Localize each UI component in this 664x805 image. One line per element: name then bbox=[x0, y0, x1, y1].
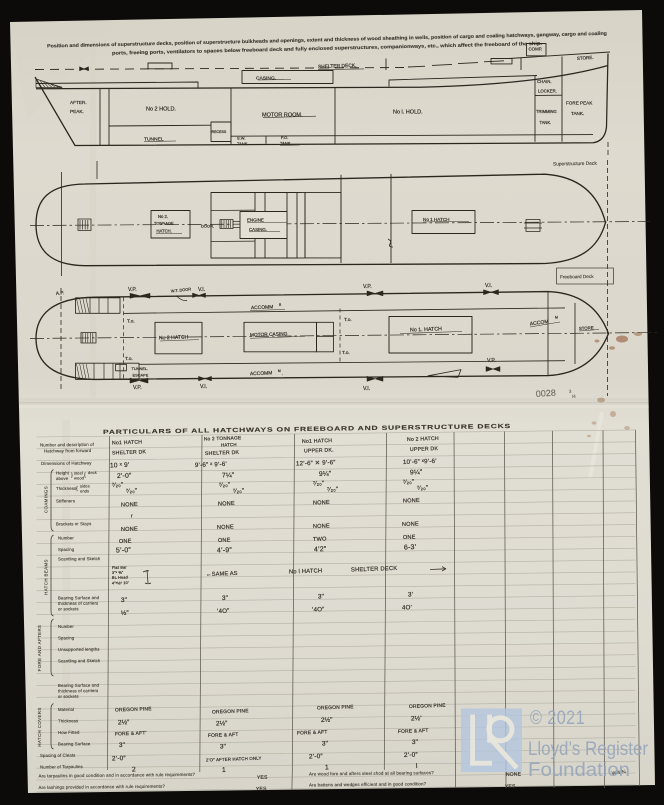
svg-text:NONE: NONE bbox=[121, 502, 138, 509]
svg-text:SHELTER DK: SHELTER DK bbox=[112, 449, 147, 456]
svg-text:TANK.: TANK. bbox=[571, 111, 584, 116]
svg-text:thickness of carriers: thickness of carriers bbox=[58, 688, 98, 693]
svg-text:Thickness: Thickness bbox=[56, 486, 76, 491]
svg-text:TWO: TWO bbox=[313, 537, 327, 543]
svg-text:FORE & AFT: FORE & AFT bbox=[398, 728, 429, 735]
svg-text:⁷⁄₂₀”: ⁷⁄₂₀” bbox=[233, 487, 245, 495]
svg-text:No l HATCH: No l HATCH bbox=[289, 568, 323, 575]
svg-text:NONE: NONE bbox=[403, 498, 420, 505]
svg-text:Hatchway from forward: Hatchway from forward bbox=[44, 448, 92, 453]
svg-text:or sockets: or sockets bbox=[58, 694, 79, 699]
svg-text:© 2021: © 2021 bbox=[530, 708, 585, 729]
svg-text:⁷⁄₂₀”: ⁷⁄₂₀” bbox=[403, 478, 415, 486]
svg-text:Scantling and Sketch: Scantling and Sketch bbox=[58, 556, 101, 561]
svg-text:V.P.: V.P. bbox=[133, 385, 142, 391]
svg-text:⁷⁄₂₀”: ⁷⁄₂₀” bbox=[313, 480, 325, 488]
svg-text:T.o.: T.o. bbox=[127, 319, 135, 325]
svg-text:’4O”: ’4O” bbox=[217, 608, 230, 615]
svg-text:Unsupported lengths: Unsupported lengths bbox=[58, 647, 100, 652]
svg-text:T.o.: T.o. bbox=[342, 350, 350, 356]
svg-text:T.o.: T.o. bbox=[344, 317, 352, 323]
svg-text:M: M bbox=[278, 369, 281, 373]
svg-text:COMP.: COMP. bbox=[529, 47, 543, 52]
svg-text:or sockets: or sockets bbox=[58, 606, 79, 611]
svg-text:Number of Tarpaulins: Number of Tarpaulins bbox=[40, 764, 83, 769]
svg-text:BL Head: BL Head bbox=[112, 575, 128, 580]
svg-text:CASING.: CASING. bbox=[249, 227, 267, 232]
svg-text:2½’: 2½’ bbox=[411, 714, 423, 722]
svg-text:Brackets or Stays: Brackets or Stays bbox=[56, 521, 91, 526]
svg-text:No 1 HATCH: No 1 HATCH bbox=[423, 217, 449, 222]
svg-text:NONE: NONE bbox=[217, 524, 234, 531]
svg-text:deck: deck bbox=[88, 470, 97, 475]
svg-text:UPPER DK: UPPER DK bbox=[410, 446, 439, 453]
svg-text:wood: wood bbox=[74, 475, 84, 480]
svg-text:4’2”: 4’2” bbox=[314, 546, 327, 553]
svg-text:SHELTER DK: SHELTER DK bbox=[205, 450, 240, 457]
svg-text:⁷⁄₂₀”: ⁷⁄₂₀” bbox=[112, 481, 124, 489]
svg-text:Stiffeners: Stiffeners bbox=[56, 498, 75, 503]
svg-text:FORE & AFT: FORE & AFT bbox=[297, 729, 328, 736]
svg-text:0028: 0028 bbox=[535, 388, 556, 399]
svg-text:TONNAGE: TONNAGE bbox=[154, 221, 174, 226]
svg-text:ONE: ONE bbox=[218, 538, 231, 544]
svg-text:NONE: NONE bbox=[402, 521, 419, 528]
svg-text:AFTER.: AFTER. bbox=[70, 100, 87, 105]
svg-text:YES: YES bbox=[256, 786, 267, 792]
svg-text:}: } bbox=[71, 472, 73, 478]
svg-text:above: above bbox=[56, 476, 69, 481]
svg-text:ENGINE: ENGINE bbox=[247, 218, 264, 223]
svg-text:10’-6” ˣ9’-6’: 10’-6” ˣ9’-6’ bbox=[403, 458, 437, 466]
svg-text:2’-0”: 2’-0” bbox=[309, 753, 323, 760]
svg-text:½": ½" bbox=[121, 609, 129, 617]
svg-text:V.l.: V.l. bbox=[198, 287, 205, 293]
svg-text:⁷⁄₂₀”: ⁷⁄₂₀” bbox=[417, 484, 429, 492]
svg-text:Flat Bar: Flat Bar bbox=[112, 565, 128, 570]
svg-text:3": 3" bbox=[220, 743, 226, 750]
svg-text:TANK.: TANK. bbox=[540, 120, 552, 125]
svg-text:NONE: NONE bbox=[313, 523, 330, 530]
svg-text:Number and description of: Number and description of bbox=[40, 442, 95, 448]
svg-text:Thickness: Thickness bbox=[58, 718, 78, 723]
svg-text:No l. HOLD.: No l. HOLD. bbox=[393, 110, 423, 116]
svg-text:2’-0”: 2’-0” bbox=[117, 472, 132, 480]
svg-text:Spacing of Cleats: Spacing of Cleats bbox=[40, 753, 75, 758]
svg-text:NONE: NONE bbox=[218, 501, 235, 508]
svg-text:V.P.: V.P. bbox=[487, 358, 496, 364]
svg-text:r: r bbox=[131, 513, 133, 519]
svg-text:UPPER DK.: UPPER DK. bbox=[304, 447, 334, 454]
svg-text:Height: Height bbox=[56, 470, 70, 475]
svg-text:No1 HATCH: No1 HATCH bbox=[112, 439, 142, 446]
svg-text:⁷⁄₂₀”: ⁷⁄₂₀” bbox=[219, 481, 231, 489]
svg-text:3": 3" bbox=[222, 595, 228, 602]
svg-text:{: { bbox=[84, 472, 86, 478]
svg-text:No1 HATCH: No1 HATCH bbox=[302, 438, 332, 445]
svg-text:V.P.: V.P. bbox=[128, 287, 137, 293]
svg-text:3": 3" bbox=[318, 593, 324, 600]
svg-text:Number: Number bbox=[58, 624, 74, 629]
svg-text:FORE & AFT’: FORE & AFT’ bbox=[115, 730, 147, 737]
svg-text:COAMINGS: COAMINGS bbox=[44, 486, 49, 513]
svg-text:7¼”: 7¼” bbox=[222, 472, 235, 479]
svg-text:Scantling and Sketch: Scantling and Sketch bbox=[58, 658, 101, 663]
svg-text:Dimensions of Hatchway: Dimensions of Hatchway bbox=[41, 460, 92, 466]
svg-text:M: M bbox=[555, 316, 558, 320]
svg-text:Superstructure Deck: Superstructure Deck bbox=[553, 161, 597, 168]
svg-text:4"ˣ½ˣ 10’: 4"ˣ½ˣ 10’ bbox=[112, 581, 129, 586]
svg-text:Lloyd’s Register: Lloyd’s Register bbox=[528, 738, 648, 760]
svg-text:DOOR.: DOOR. bbox=[201, 224, 214, 229]
svg-text:CHAIN.: CHAIN. bbox=[537, 79, 552, 84]
svg-text:2½": 2½" bbox=[321, 716, 333, 724]
svg-text:HATCH: HATCH bbox=[221, 442, 237, 448]
svg-text:Material: Material bbox=[58, 707, 74, 712]
svg-text:10 ˣ 9’: 10 ˣ 9’ bbox=[110, 462, 130, 470]
svg-text:ONE: ONE bbox=[403, 535, 416, 541]
svg-text:How Fitted: How Fitted bbox=[58, 730, 80, 735]
svg-text:12’-6” ✕ 9’-6”: 12’-6” ✕ 9’-6” bbox=[296, 459, 336, 467]
svg-text:2½”: 2½” bbox=[216, 719, 228, 727]
svg-text:HATCH BEAMS: HATCH BEAMS bbox=[44, 559, 49, 595]
svg-text:3": 3" bbox=[322, 740, 328, 747]
svg-text:Bearing Surface: Bearing Surface bbox=[58, 741, 91, 746]
svg-text:2’-0”: 2’-0” bbox=[404, 752, 418, 759]
svg-text:5’-0”: 5’-0” bbox=[116, 547, 132, 555]
svg-text:S.W.: S.W. bbox=[237, 136, 245, 141]
svg-text:ESCAPE: ESCAPE bbox=[133, 373, 149, 378]
svg-text:9¼”: 9¼” bbox=[319, 471, 332, 478]
svg-text:FORE PEAK: FORE PEAK bbox=[566, 101, 593, 106]
svg-text:Freeboard Deck: Freeboard Deck bbox=[560, 274, 594, 280]
svg-text:RECESS: RECESS bbox=[212, 130, 227, 134]
svg-text:3": 3" bbox=[119, 742, 125, 749]
svg-text:V.l.: V.l. bbox=[200, 384, 207, 390]
svg-text:YES: YES bbox=[505, 784, 516, 790]
svg-text:CASING.: CASING. bbox=[256, 76, 276, 82]
svg-text:4’-9”: 4’-9” bbox=[217, 547, 233, 555]
svg-text:FORE & AFT: FORE & AFT bbox=[208, 732, 239, 739]
svg-text:9¼”: 9¼” bbox=[410, 469, 423, 476]
svg-text:.: . bbox=[282, 372, 283, 377]
svg-text:3": 3" bbox=[121, 597, 127, 604]
svg-text:1: 1 bbox=[222, 767, 226, 774]
svg-text:{: { bbox=[76, 486, 78, 492]
svg-text:No 2 HOLD.: No 2 HOLD. bbox=[146, 107, 176, 113]
svg-text:2½”: 2½” bbox=[118, 718, 130, 726]
svg-text:NONE: NONE bbox=[121, 526, 138, 533]
svg-text:No 2 HATCH: No 2 HATCH bbox=[407, 436, 439, 443]
svg-text:HATCH.: HATCH. bbox=[157, 229, 172, 234]
svg-text:2’-0”: 2’-0” bbox=[112, 755, 126, 762]
svg-text:TUNNEL.: TUNNEL. bbox=[132, 366, 149, 371]
svg-text:FORE AND AFTERS: FORE AND AFTERS bbox=[37, 625, 42, 672]
svg-text:3’: 3’ bbox=[408, 591, 414, 598]
svg-text:T.o.: T.o. bbox=[125, 356, 133, 362]
svg-text:YES: YES bbox=[257, 775, 268, 781]
svg-text:3"ˣ ⅜": 3"ˣ ⅜" bbox=[112, 571, 124, 575]
svg-text:ACCOMM: ACCOMM bbox=[250, 370, 272, 377]
svg-text:LOCKER.: LOCKER. bbox=[538, 89, 557, 94]
svg-text:V.l.: V.l. bbox=[363, 386, 370, 392]
svg-text:No 2.: No 2. bbox=[158, 214, 168, 219]
svg-text:V.l.: V.l. bbox=[485, 283, 492, 289]
svg-text:TRIMMING: TRIMMING bbox=[536, 109, 557, 114]
svg-text:Spacing: Spacing bbox=[58, 547, 75, 552]
svg-text:’4O”: ’4O” bbox=[312, 606, 325, 613]
svg-text:A.P.: A.P. bbox=[56, 290, 65, 297]
svg-text:TANK: TANK bbox=[237, 141, 248, 146]
svg-text:9’-6” ˣ 9’-6’: 9’-6” ˣ 9’-6’ bbox=[195, 461, 227, 469]
svg-text:3": 3" bbox=[412, 739, 418, 746]
svg-text:⁷⁄₂₀”: ⁷⁄₂₀” bbox=[327, 486, 339, 494]
svg-text:HATCH COVERS: HATCH COVERS bbox=[37, 707, 42, 746]
svg-text:6-3’: 6-3’ bbox=[404, 544, 417, 551]
svg-text:Spacing: Spacing bbox=[58, 635, 75, 640]
svg-text:ends: ends bbox=[80, 488, 89, 493]
svg-text:4O’: 4O’ bbox=[402, 604, 412, 611]
svg-text:thickness of carriers: thickness of carriers bbox=[58, 601, 98, 606]
svg-text:F.O.: F.O. bbox=[281, 135, 288, 140]
svg-text:ONE: ONE bbox=[119, 539, 132, 545]
svg-text:NONE: NONE bbox=[506, 771, 522, 778]
svg-text:PEAK.: PEAK. bbox=[70, 109, 84, 114]
svg-text:NONE: NONE bbox=[313, 500, 330, 507]
svg-text:←SAME AS: ←SAME AS bbox=[206, 571, 238, 578]
svg-text:V.P.: V.P. bbox=[363, 284, 372, 290]
svg-text:TANK.: TANK. bbox=[280, 141, 291, 146]
svg-text:Foundation: Foundation bbox=[528, 759, 630, 781]
svg-text:⁷⁄₂₀”: ⁷⁄₂₀” bbox=[126, 487, 138, 495]
svg-text:Number: Number bbox=[58, 535, 74, 540]
